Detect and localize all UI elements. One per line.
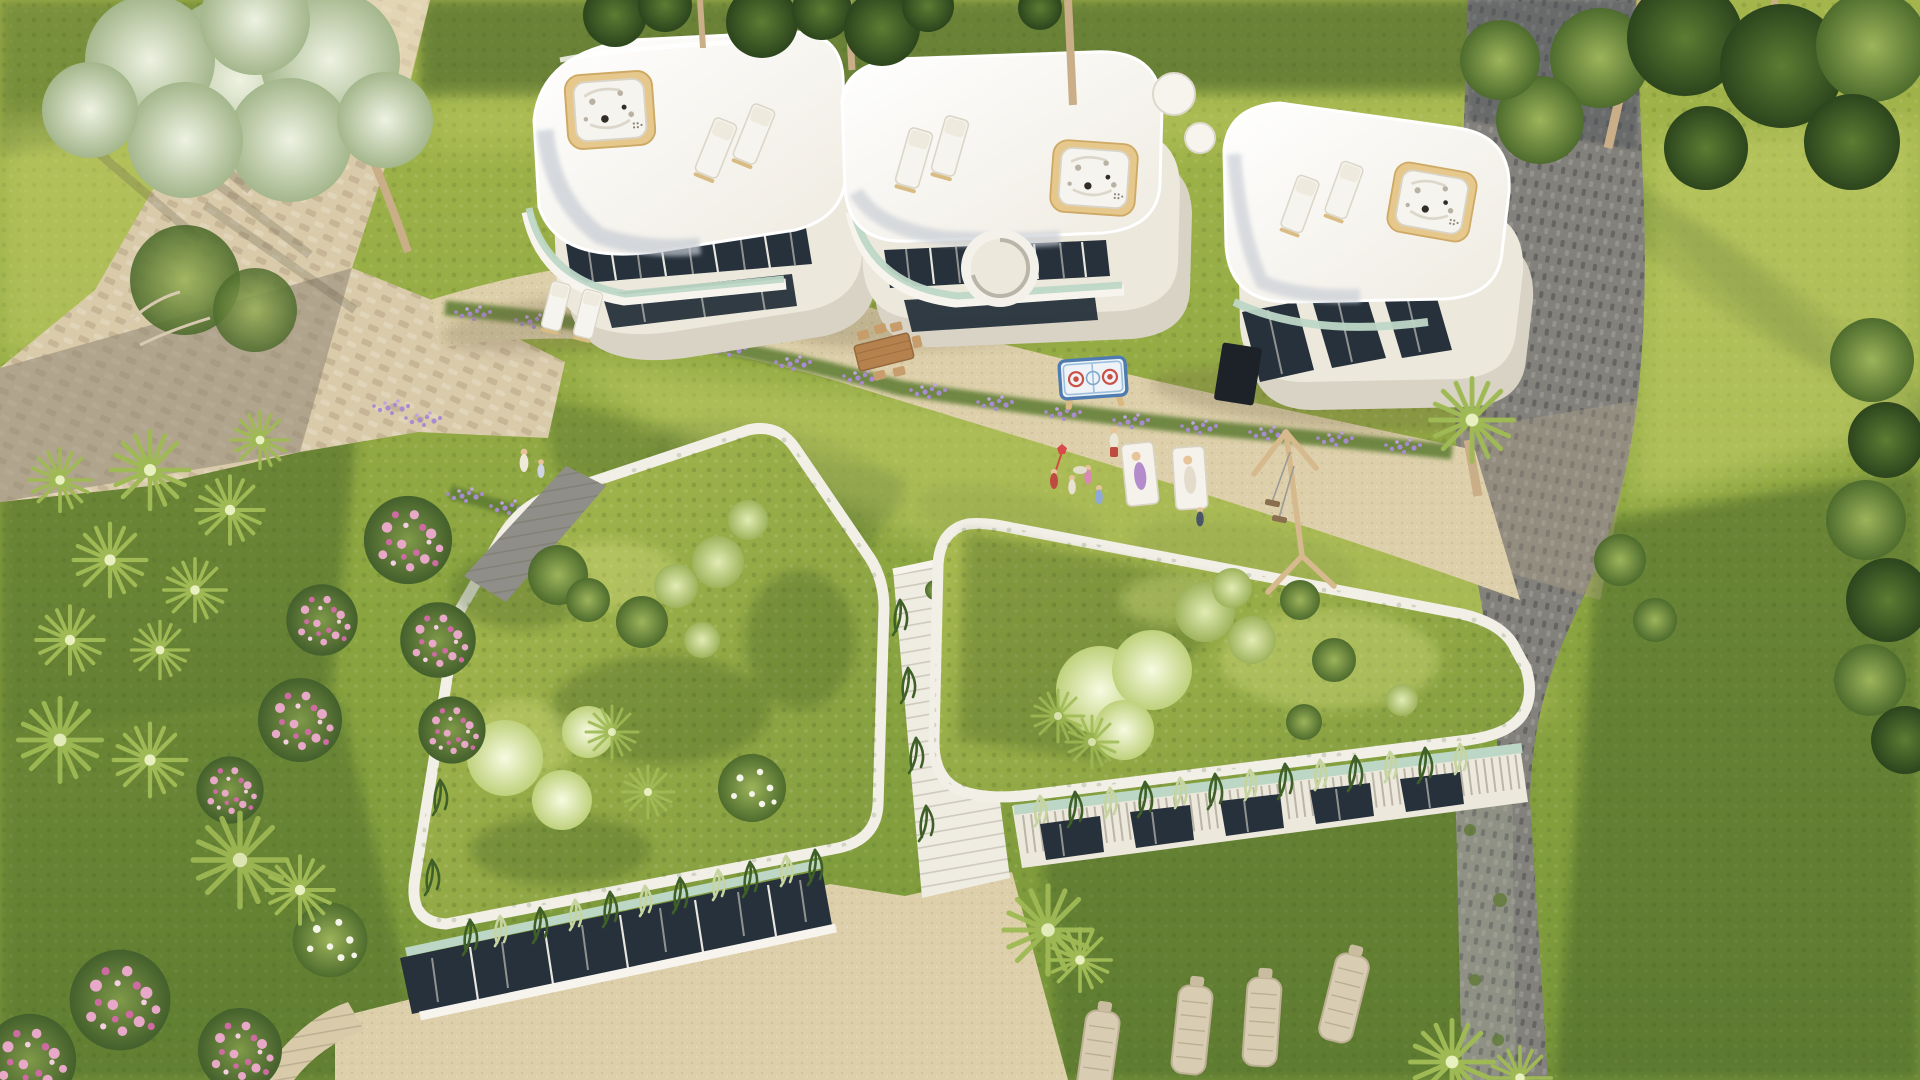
person-child-walking xyxy=(1196,507,1204,527)
aerial-villa-render: Sunny aerial 3D rendering of a luxury vi… xyxy=(0,0,1920,1080)
stair-tower xyxy=(1185,123,1215,153)
villa-left xyxy=(527,32,876,360)
jacuzzi-villa-left xyxy=(564,70,656,150)
jacuzzi-villa-right xyxy=(1385,160,1479,244)
shrub-by-path xyxy=(1594,534,1646,586)
villa-right xyxy=(1214,103,1533,410)
spiral-stair xyxy=(966,234,1034,302)
lawn-lounger-occupied xyxy=(1121,441,1159,506)
villa-middle xyxy=(842,52,1215,347)
jacuzzi-villa-middle xyxy=(1049,139,1138,216)
lawn-lounger-occupied xyxy=(1172,446,1208,510)
render-canvas: Sunny aerial 3D rendering of a luxury vi… xyxy=(0,0,1920,1080)
person-standing xyxy=(1110,426,1119,457)
stair-tower xyxy=(1153,73,1195,115)
